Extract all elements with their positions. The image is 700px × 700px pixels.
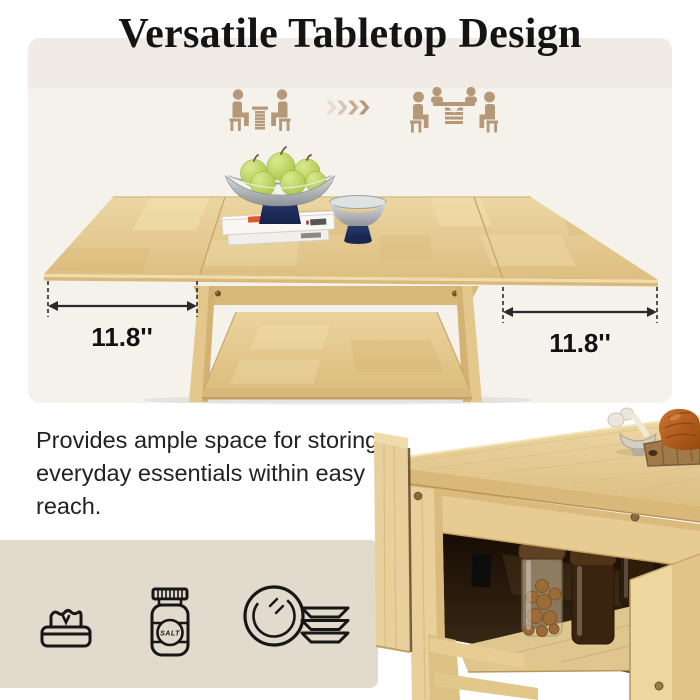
napkin-box-icon — [38, 594, 94, 650]
right-post — [630, 554, 700, 700]
four-seater-table-icon — [408, 85, 500, 133]
arrow-chevrons-icon — [326, 100, 370, 115]
storage-description: Provides ample space for storing everyda… — [36, 424, 388, 523]
salt-jar-icon: SALT — [146, 586, 194, 658]
salt-label: SALT — [160, 631, 180, 638]
drop-leaf — [374, 432, 411, 652]
dimension-right: 11.8'' — [503, 287, 657, 358]
storage-compartment-photo — [372, 404, 700, 700]
page-title: Versatile Tabletop Design — [0, 10, 700, 58]
dishes-icon — [240, 580, 352, 652]
dimension-left: 11.8'' — [48, 281, 197, 352]
cookie-jar — [519, 544, 565, 637]
dimension-right-label: 11.8'' — [549, 328, 611, 358]
hinge-bracket — [471, 554, 492, 588]
table-base — [189, 286, 482, 402]
dimension-left-label: 11.8'' — [91, 322, 153, 352]
plate-stack — [302, 608, 348, 642]
two-seater-table-icon — [227, 88, 293, 135]
storage-icons-panel: SALT — [0, 540, 378, 688]
product-infographic: Versatile Tabletop Design — [0, 0, 700, 700]
table-photo: 11.8'' 11.8'' — [0, 140, 700, 405]
